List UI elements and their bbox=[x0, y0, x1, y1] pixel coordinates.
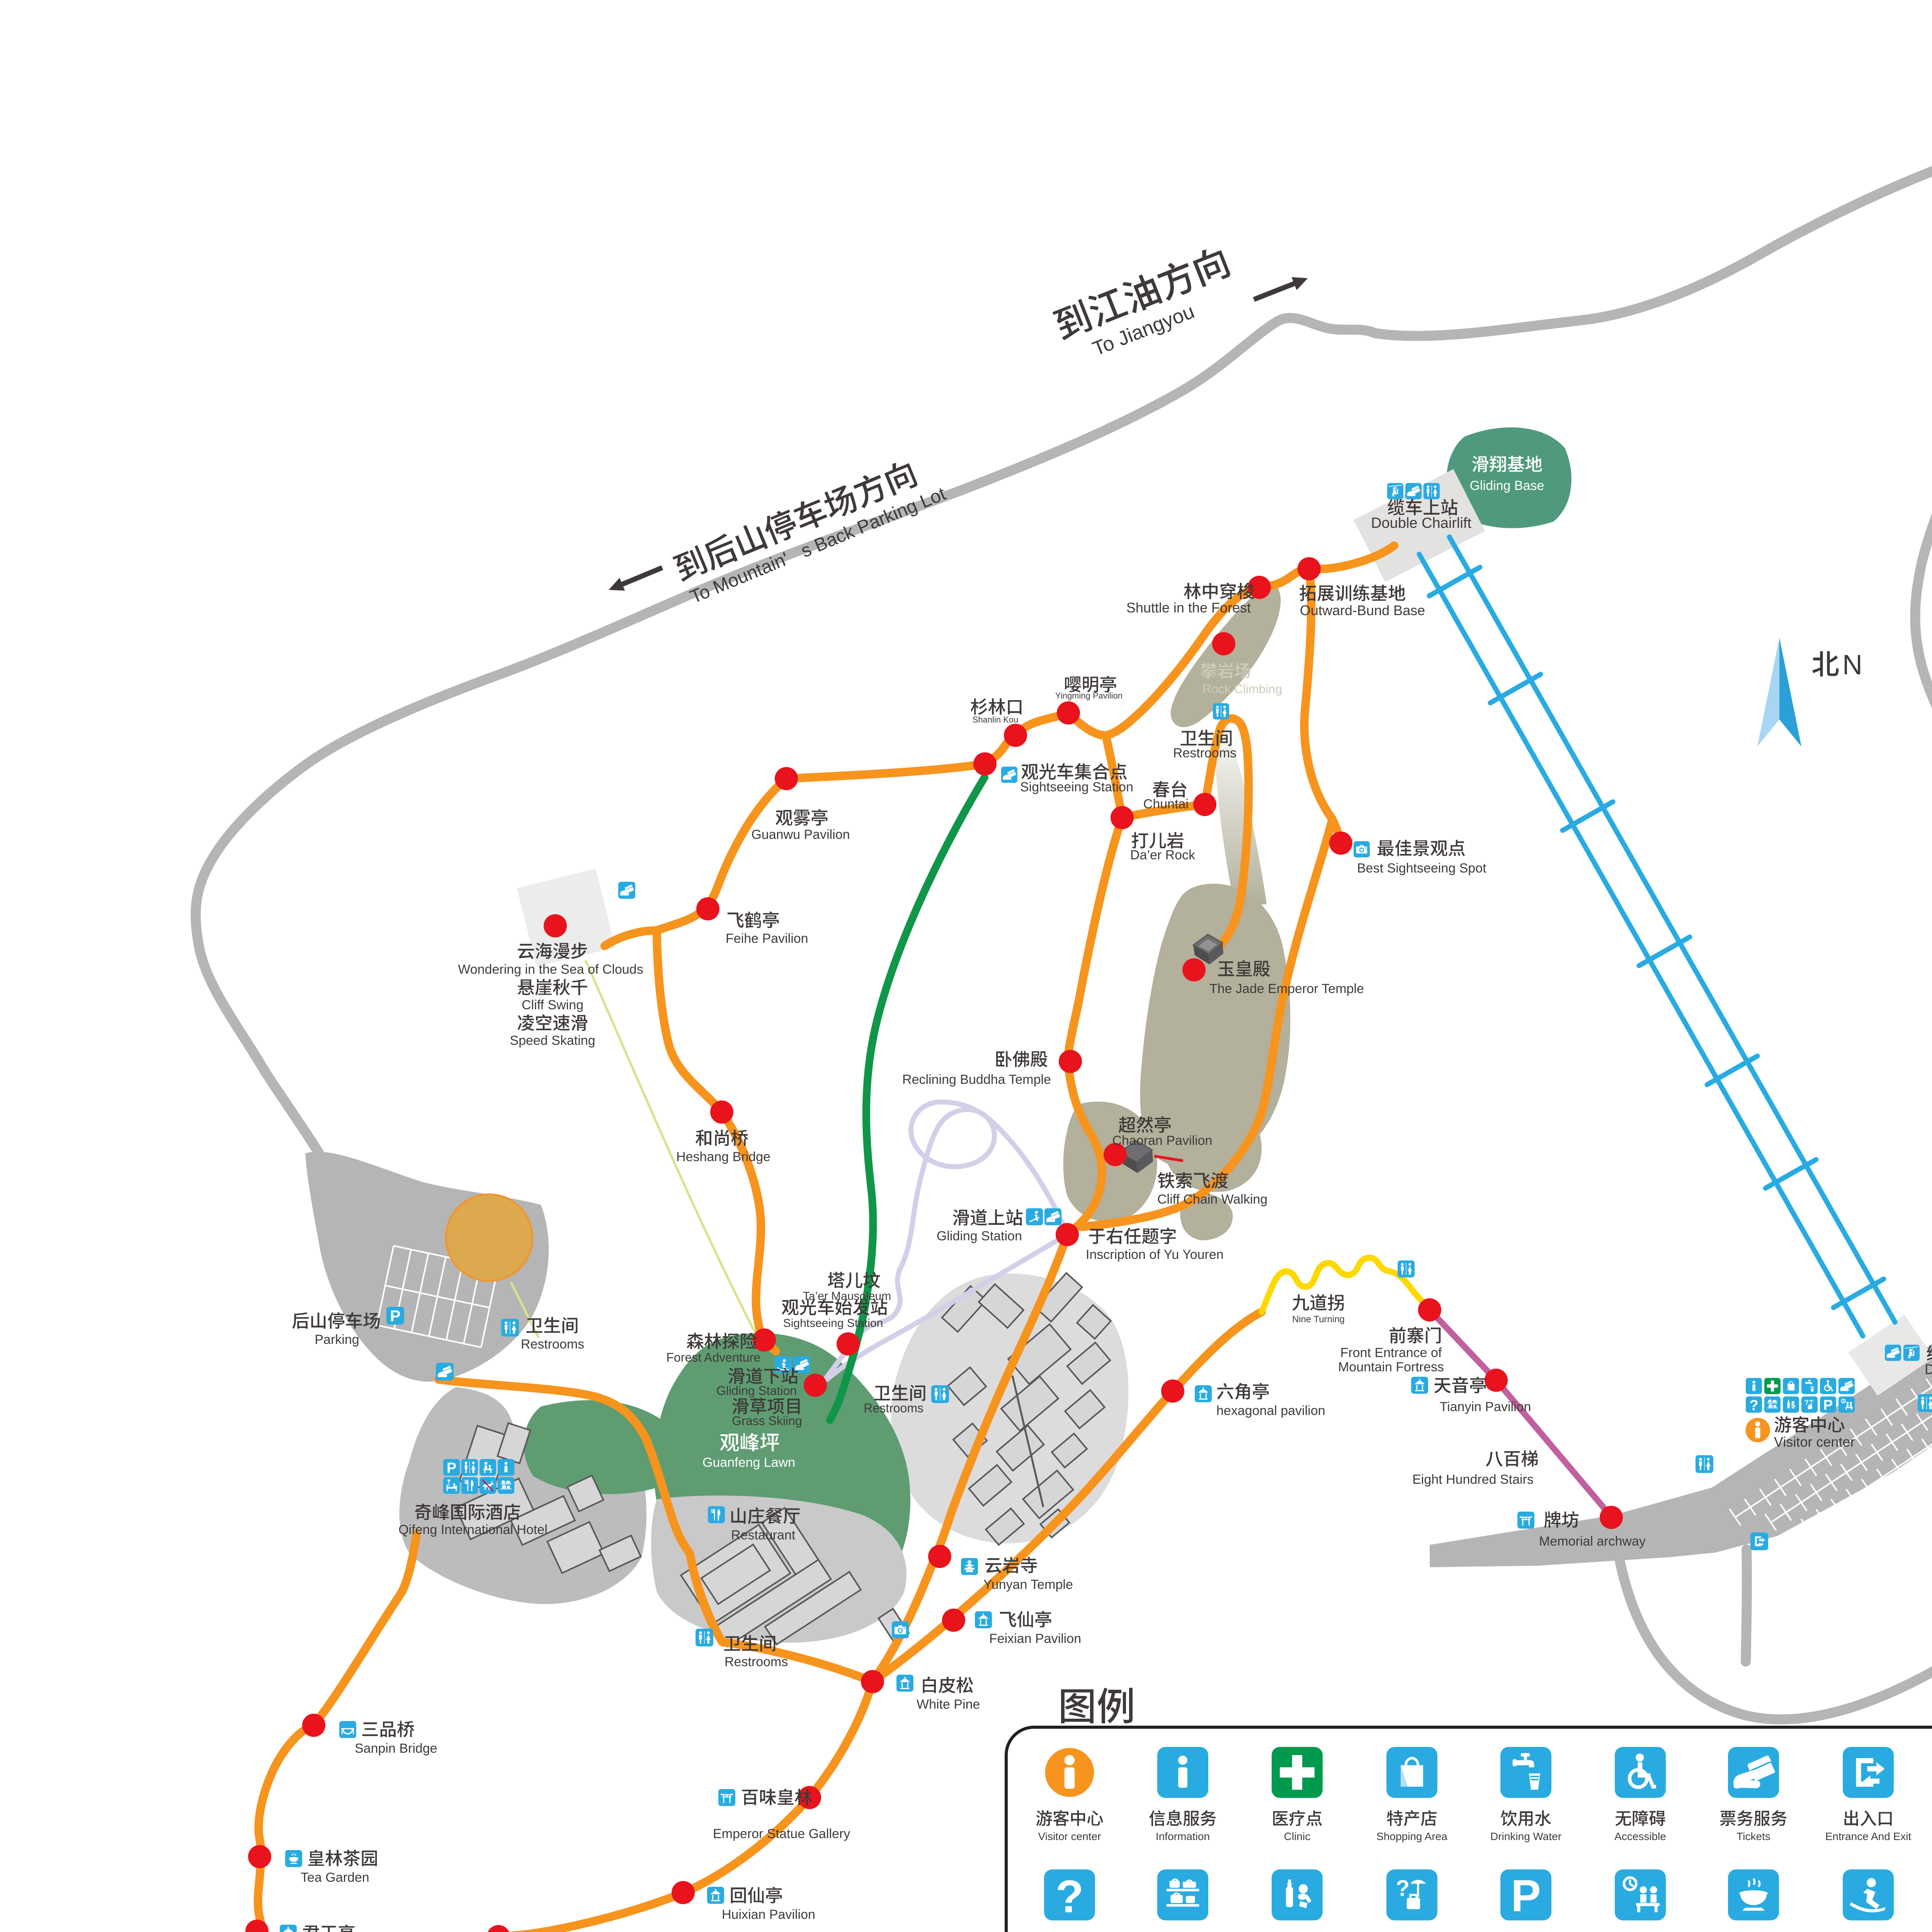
svg-text:Grass Skiing: Grass Skiing bbox=[732, 1414, 802, 1428]
svg-text:Sightseeing Station: Sightseeing Station bbox=[1020, 780, 1133, 794]
svg-text:The Jade Emperor Temple: The Jade Emperor Temple bbox=[1209, 981, 1364, 996]
svg-text:Restrooms: Restrooms bbox=[724, 1655, 788, 1669]
svg-text:Gliding Station: Gliding Station bbox=[937, 1229, 1022, 1243]
svg-text:Entrance And Exit: Entrance And Exit bbox=[1825, 1830, 1912, 1842]
svg-text:Front Entrance of: Front Entrance of bbox=[1340, 1345, 1442, 1360]
svg-text:Gliding Station: Gliding Station bbox=[716, 1384, 797, 1398]
svg-text:Wondering in the Sea of Clouds: Wondering in the Sea of Clouds bbox=[458, 962, 643, 977]
svg-text:Restrooms: Restrooms bbox=[1173, 746, 1236, 760]
svg-text:Yingming Pavilion: Yingming Pavilion bbox=[1055, 691, 1122, 701]
svg-text:Mountain Fortress: Mountain Fortress bbox=[1338, 1360, 1444, 1374]
svg-text:Reclining Buddha Temple: Reclining Buddha Temple bbox=[902, 1072, 1051, 1087]
svg-text:Feixian Pavilion: Feixian Pavilion bbox=[989, 1631, 1081, 1646]
svg-text:Parking: Parking bbox=[315, 1332, 359, 1347]
svg-text:Guanfeng Lawn: Guanfeng Lawn bbox=[702, 1455, 795, 1470]
svg-text:Feihe Pavilion: Feihe Pavilion bbox=[726, 931, 808, 946]
svg-text:Restrooms: Restrooms bbox=[864, 1401, 923, 1415]
svg-text:Drinking Water: Drinking Water bbox=[1490, 1830, 1561, 1842]
svg-text:Information: Information bbox=[1156, 1830, 1210, 1842]
svg-text:Guanwu Pavilion: Guanwu Pavilion bbox=[751, 827, 850, 842]
svg-text:Shuttle in the Forest: Shuttle in the Forest bbox=[1126, 600, 1251, 616]
svg-text:Sightseeing Station: Sightseeing Station bbox=[783, 1317, 883, 1330]
svg-text:Shanlin Kou: Shanlin Kou bbox=[973, 715, 1019, 724]
svg-text:Outward-Bund Base: Outward-Bund Base bbox=[1300, 602, 1425, 618]
svg-text:Memorial archway: Memorial archway bbox=[1539, 1534, 1646, 1549]
svg-text:Da’er Rock: Da’er Rock bbox=[1130, 848, 1196, 862]
svg-text:Shopping Area: Shopping Area bbox=[1376, 1830, 1447, 1842]
svg-text:Yunyan Temple: Yunyan Temple bbox=[983, 1577, 1073, 1592]
svg-text:Gliding Base: Gliding Base bbox=[1470, 478, 1544, 493]
svg-text:Sanpin Bridge: Sanpin Bridge bbox=[355, 1741, 437, 1756]
svg-text:Emperor Statue Gallery: Emperor Statue Gallery bbox=[713, 1827, 850, 1841]
svg-text:hexagonal pavilion: hexagonal pavilion bbox=[1216, 1403, 1325, 1418]
svg-text:Ta’er Mausoleum: Ta’er Mausoleum bbox=[803, 1290, 891, 1303]
svg-text:Qifeng International Hotel: Qifeng International Hotel bbox=[398, 1522, 548, 1537]
svg-text:Forest Adventure: Forest Adventure bbox=[666, 1350, 760, 1364]
svg-text:Accessible: Accessible bbox=[1614, 1830, 1666, 1842]
svg-text:Cliff Chain Walking: Cliff Chain Walking bbox=[1157, 1192, 1267, 1207]
svg-text:Best Sightseeing Spot: Best Sightseeing Spot bbox=[1357, 861, 1486, 876]
svg-text:Clinic: Clinic bbox=[1284, 1830, 1310, 1842]
svg-text:Eight Hundred Stairs: Eight Hundred Stairs bbox=[1412, 1472, 1534, 1487]
svg-text:Chaoran Pavilion: Chaoran Pavilion bbox=[1112, 1133, 1213, 1148]
svg-text:Chuntai: Chuntai bbox=[1143, 797, 1189, 811]
svg-text:Heshang Bridge: Heshang Bridge bbox=[676, 1150, 770, 1164]
svg-text:Restaurant: Restaurant bbox=[731, 1528, 796, 1543]
svg-text:Cliff Swing: Cliff Swing bbox=[522, 998, 583, 1012]
svg-text:Inscription of Yu Youren: Inscription of Yu Youren bbox=[1086, 1247, 1224, 1262]
svg-text:Restrooms: Restrooms bbox=[521, 1337, 584, 1352]
svg-text:Huixian Pavilion: Huixian Pavilion bbox=[722, 1907, 815, 1922]
svg-text:White Pine: White Pine bbox=[917, 1697, 980, 1712]
svg-text:N: N bbox=[1842, 650, 1862, 680]
svg-text:Rock Climbing: Rock Climbing bbox=[1202, 682, 1282, 696]
svg-text:Tianyin Pavilion: Tianyin Pavilion bbox=[1440, 1400, 1531, 1414]
svg-text:Double Chairlift: Double Chairlift bbox=[1925, 1361, 1932, 1377]
svg-text:Visitor center: Visitor center bbox=[1774, 1434, 1855, 1450]
svg-text:Speed Skating: Speed Skating bbox=[510, 1033, 595, 1048]
svg-text:Double Chairlift: Double Chairlift bbox=[1371, 515, 1471, 531]
svg-text:Tea Garden: Tea Garden bbox=[301, 1870, 369, 1885]
svg-text:Tickets: Tickets bbox=[1736, 1830, 1770, 1842]
svg-text:Visitor center: Visitor center bbox=[1038, 1830, 1101, 1842]
svg-text:Nine Turning: Nine Turning bbox=[1292, 1314, 1345, 1325]
